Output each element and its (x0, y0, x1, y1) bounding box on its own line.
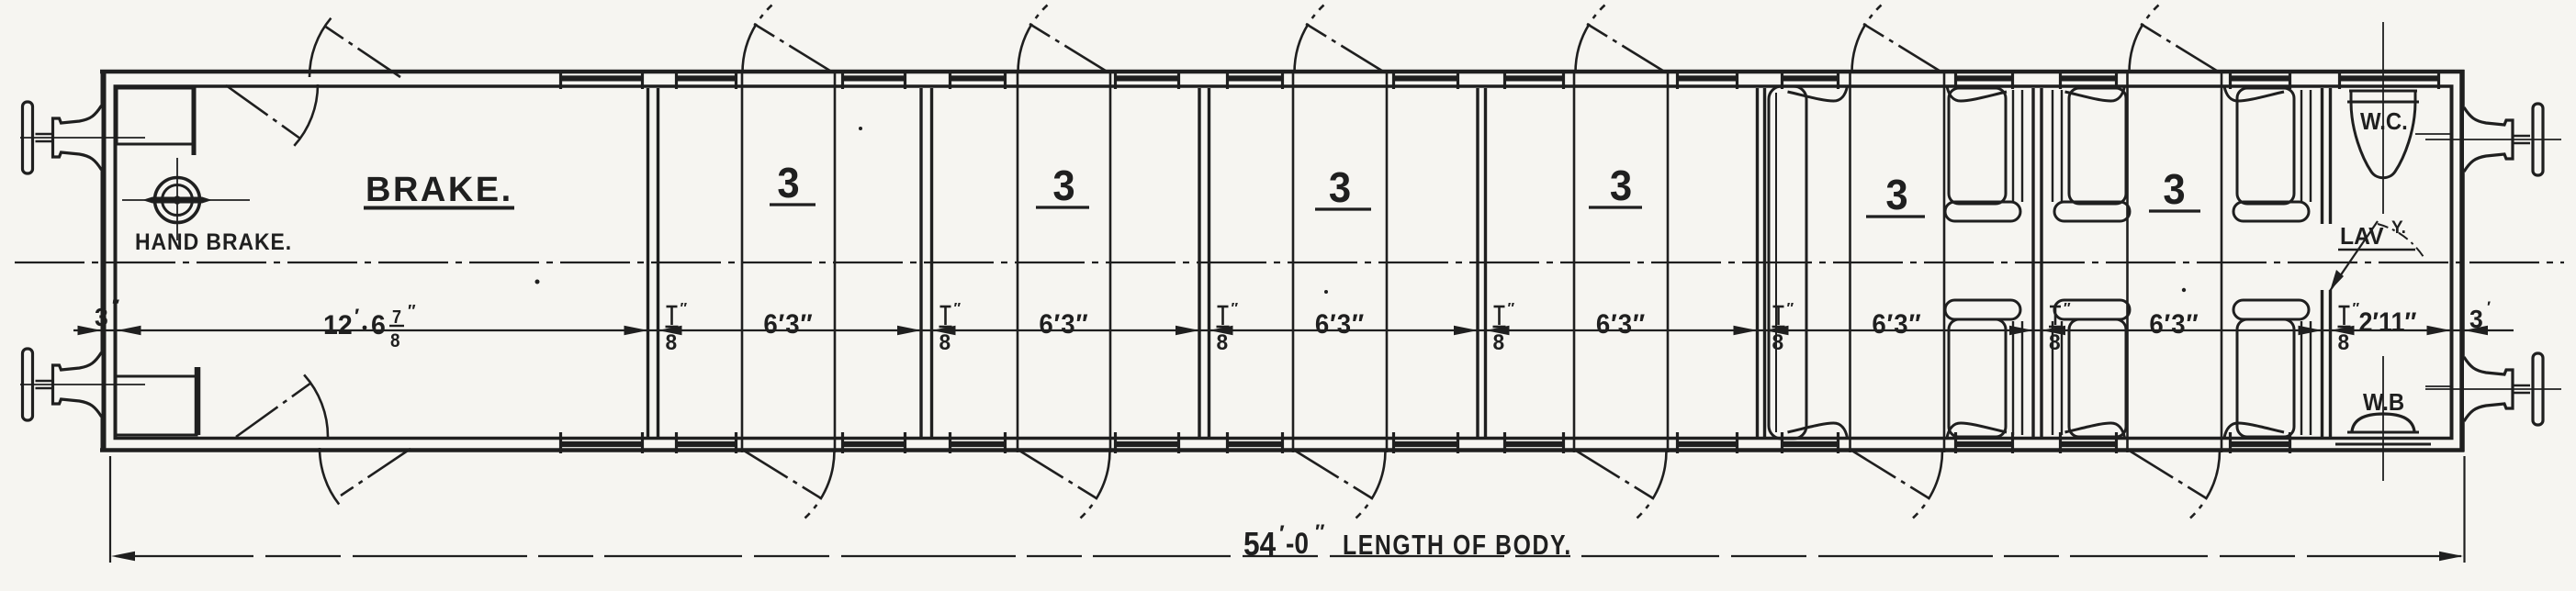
svg-text:″: ″ (681, 301, 688, 317)
svg-text:-0: -0 (1286, 528, 1309, 560)
svg-text:2′11″: 2′11″ (2359, 307, 2417, 339)
svg-text:8: 8 (390, 330, 400, 351)
svg-text:LAV: LAV (2340, 223, 2384, 250)
svg-text:′: ′ (354, 305, 359, 328)
svg-text:′: ′ (1279, 521, 1285, 546)
svg-text:3: 3 (1329, 163, 1351, 211)
svg-text:3: 3 (777, 159, 799, 206)
svg-text:12: 12 (323, 310, 353, 340)
svg-text:″: ″ (112, 296, 119, 314)
svg-text:8: 8 (1217, 329, 1229, 354)
svg-text:3: 3 (1610, 162, 1632, 209)
svg-text:3: 3 (2163, 165, 2185, 213)
svg-text:3: 3 (1052, 162, 1074, 209)
svg-text:3: 3 (95, 302, 108, 331)
svg-text:6′3″: 6′3″ (1872, 309, 1921, 340)
svg-text:3: 3 (1885, 171, 1907, 218)
svg-text:HAND BRAKE.: HAND BRAKE. (135, 229, 292, 255)
svg-text:3: 3 (2469, 304, 2483, 333)
svg-text:8: 8 (939, 329, 951, 354)
svg-text:BRAKE.: BRAKE. (366, 171, 513, 209)
svg-text:W.C.: W.C. (2360, 108, 2408, 135)
svg-text:6′3″: 6′3″ (1596, 309, 1646, 340)
svg-text:8: 8 (666, 329, 678, 354)
svg-text:LENGTH OF BODY.: LENGTH OF BODY. (1343, 529, 1572, 560)
svg-text:″: ″ (954, 301, 962, 317)
svg-text:′: ′ (2487, 298, 2491, 316)
svg-text:″: ″ (1232, 301, 1239, 317)
svg-text:54: 54 (1243, 526, 1276, 563)
svg-text:8: 8 (2049, 329, 2061, 354)
svg-text:Y.: Y. (2391, 218, 2406, 238)
svg-text:8: 8 (1493, 329, 1505, 354)
svg-text:8: 8 (2338, 329, 2350, 354)
svg-text:″: ″ (408, 302, 416, 320)
svg-text:″: ″ (1508, 301, 1515, 317)
svg-text:″: ″ (1315, 520, 1325, 543)
svg-text:6′3″: 6′3″ (763, 309, 813, 340)
svg-text:6′3″: 6′3″ (1039, 309, 1088, 340)
svg-text:″: ″ (2064, 301, 2071, 317)
svg-text:8: 8 (1772, 329, 1784, 354)
svg-text:6′3″: 6′3″ (1315, 309, 1365, 340)
svg-text:W.B: W.B (2363, 389, 2404, 416)
svg-text:″: ″ (1787, 301, 1794, 317)
svg-text:6: 6 (371, 310, 386, 340)
svg-text:6′3″: 6′3″ (2149, 309, 2199, 340)
